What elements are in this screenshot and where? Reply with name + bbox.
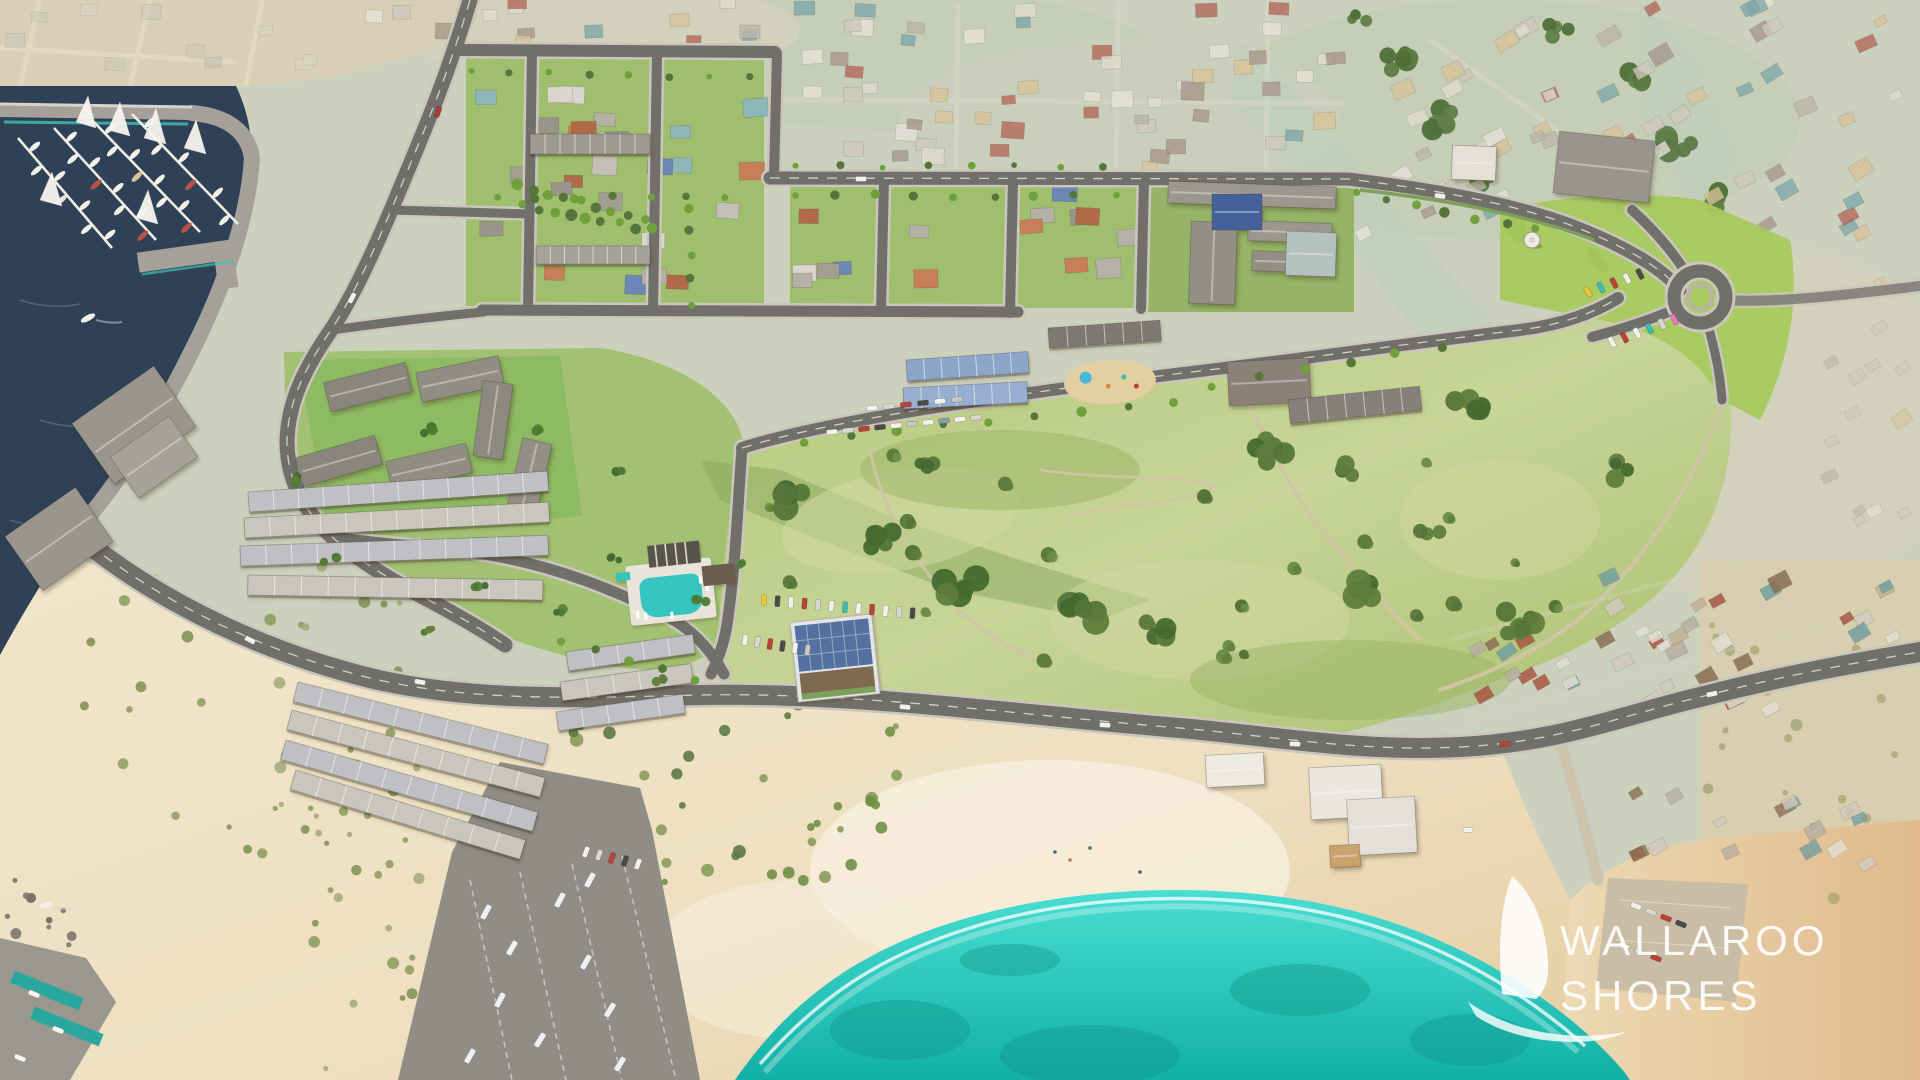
roundabout [1674,271,1726,323]
aerial-render-stage: WALLAROO SHORES [0,0,1920,1080]
wallaroo-shores-aerial-render: WALLAROO SHORES [0,0,1920,1080]
lap-pool [616,572,631,581]
logo-text-line1: WALLAROO [1560,917,1829,964]
logo-text-line2: SHORES [1560,972,1761,1019]
resort-building [702,563,736,586]
marina-quay [0,110,192,113]
community-solar-building [790,614,880,702]
